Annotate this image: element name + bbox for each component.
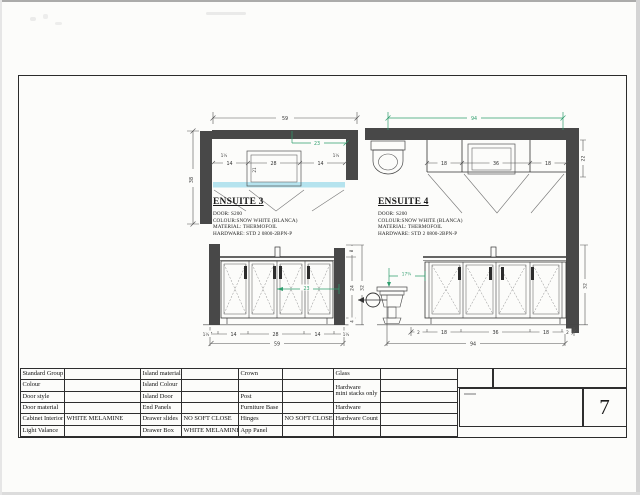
toilet-bowl-plan <box>373 150 403 174</box>
titleblock-cell-small <box>457 368 494 388</box>
vanity-plan-lines <box>427 140 566 172</box>
drawing-sheet: 59 38 14 28 14 1½ 1½ 21 23 <box>0 0 640 495</box>
stiles <box>249 261 305 318</box>
sink-cabinet-plan-inner <box>472 148 511 170</box>
dim-e3-elev-toe: 4 <box>350 320 355 323</box>
dim-e3-elev-seg-center: 28 <box>272 332 278 338</box>
spec-value-cell <box>182 369 239 380</box>
spec-value-cell <box>381 391 458 402</box>
counter-highlight <box>213 182 345 188</box>
spec-value-cell <box>381 414 458 425</box>
door-pull <box>273 266 276 279</box>
table-row: Cabinet Interior WHITE MELAMINE Drawer s… <box>21 414 458 425</box>
ensuite4-title: ENSUITE 4 <box>378 197 429 207</box>
dim-e3-elev-seg-left: 14 <box>230 332 236 338</box>
spec-label-cell: Standard Group <box>21 369 65 380</box>
wall-right <box>566 140 579 333</box>
spec-label-line: mini stacks only <box>336 391 379 397</box>
spec-label-cell: Door style <box>21 391 65 402</box>
dim-e3-elev-filler-left: 1½ <box>203 332 210 337</box>
spec-label-cell: Hardware <box>334 402 381 413</box>
spec-label-cell: Light Valance <box>21 425 65 436</box>
dim-e3-plan-filler-right: 1½ <box>333 153 340 158</box>
faint-mark <box>464 393 476 395</box>
spec-line: MATERIAL: THERMOFOIL <box>213 224 298 231</box>
green-arrow <box>387 282 391 287</box>
spec-label-cell: Hinges <box>239 414 283 425</box>
spec-value-cell: WHITE MELAMINE <box>182 425 239 436</box>
dim-e4-elev-total: 94 <box>470 342 476 348</box>
dim-e4-plan-seg-center: 36 <box>493 161 499 167</box>
titleblock-cell-wide <box>492 368 627 388</box>
spec-value-cell <box>283 402 334 413</box>
spec-label-cell-merged: Hardware mini stacks only <box>334 380 381 403</box>
spec-line: MATERIAL: THERMOFOIL <box>378 224 463 231</box>
door-pull <box>501 267 504 280</box>
spec-label-cell <box>334 425 381 436</box>
toilet-rim <box>380 291 404 295</box>
spec-label-cell: App Panel <box>239 425 283 436</box>
dim-e4-plan-depth: 22 <box>581 156 587 162</box>
dim-e4-plan-seg-right: 18 <box>545 161 551 167</box>
spec-line: DOOR: S200 <box>213 211 298 218</box>
ensuite3-title: ENSUITE 3 <box>213 197 264 207</box>
table-row: Standard Group Island material Crown Gla… <box>21 369 458 380</box>
spec-value-cell: WHITE MELAMINE <box>65 414 141 425</box>
spec-value-cell <box>65 391 141 402</box>
dim-e3-elev-cab-height: 24 <box>350 285 356 291</box>
page-number-box: 7 <box>582 388 627 427</box>
ensuite4-spec-block: DOOR: S200 COLOUR:SNOW WHITE (BLANCA) MA… <box>378 211 463 237</box>
toilet-bowl-inner <box>379 154 398 170</box>
spec-label-cell: Hardware Count <box>334 414 381 425</box>
dim-e3-plan-filler-left: 1½ <box>221 153 228 158</box>
spec-label-cell: Island Colour <box>141 380 182 391</box>
ensuite3-spec-block: DOOR: S200 COLOUR:SNOW WHITE (BLANCA) MA… <box>213 211 298 237</box>
spec-line: HARDWARE: STD 2 0800-2BPN-P <box>378 231 463 238</box>
spec-label-cell: Post <box>239 391 283 402</box>
spec-label-cell: Cabinet Interior <box>21 414 65 425</box>
dim-e4-plan-seg-left: 18 <box>441 161 447 167</box>
dim-e4-elev-toilet-offset: 17¾ <box>402 272 411 277</box>
wall-right <box>334 248 345 325</box>
page-number: 7 <box>599 395 610 420</box>
door-swing-marks <box>432 265 559 314</box>
spec-value-cell <box>65 380 141 391</box>
door-pull <box>458 267 461 280</box>
table-row: Colour Island Colour Hardware mini stack… <box>21 380 458 391</box>
spec-table: Standard Group Island material Crown Gla… <box>20 368 458 437</box>
door-pull <box>279 266 282 279</box>
dim-e4-elev-seg-center: 36 <box>492 330 498 336</box>
titleblock-notes-box <box>459 388 584 427</box>
dim-e3-elev-total: 59 <box>274 342 280 348</box>
ensuite3-plan-view: 59 38 14 28 14 1½ 1½ 21 23 <box>187 112 360 227</box>
spec-line: COLOUR:SNOW WHITE (BLANCA) <box>378 218 463 225</box>
spec-label-cell: Crown <box>239 369 283 380</box>
door-pull <box>489 267 492 280</box>
spec-value-cell: NO SOFT CLOSE <box>283 414 334 425</box>
spec-label-cell: Drawer slides <box>141 414 182 425</box>
wall-left <box>200 131 212 224</box>
spec-value-cell <box>283 391 334 402</box>
door-pull <box>531 267 534 280</box>
spec-label-cell: Furniture Base <box>239 402 283 413</box>
dim-e4-plan-total-width: 94 <box>471 116 477 122</box>
door-pull <box>307 266 310 279</box>
dim-line-total <box>385 295 568 346</box>
door-pull <box>244 266 247 279</box>
spec-value-cell <box>65 369 141 380</box>
spec-line: HARDWARE: STD 2 0800-2BPN-P <box>213 231 298 238</box>
toilet-base <box>383 318 401 324</box>
table-row: Light Valance Drawer Box WHITE MELAMINE … <box>21 425 458 436</box>
spec-value-cell <box>182 380 239 391</box>
splay-lines <box>428 174 564 213</box>
dim-e4-elev-seg-right: 18 <box>543 330 549 336</box>
dim-e4-elev-filler-left: 2 <box>417 330 420 335</box>
table-row: Door style Island Door Post <box>21 391 458 402</box>
toilet-seat <box>377 287 407 291</box>
spec-line: DOOR: S200 <box>378 211 463 218</box>
table-row: Door material End Panels Furniture Base … <box>21 402 458 413</box>
dim-e3-plan-sink-depth: 21 <box>252 167 257 173</box>
spec-value-cell: NO SOFT CLOSE <box>182 414 239 425</box>
toe-kick <box>203 318 352 325</box>
dim-e3-plan-green: 23 <box>314 141 320 147</box>
faucet <box>491 247 496 257</box>
spec-label-cell <box>239 380 283 391</box>
faucet <box>275 247 280 257</box>
dim-e4-elev-filler-right: 2 <box>566 330 569 335</box>
dim-e3-elev-seg-right: 14 <box>314 332 320 338</box>
ensuite4-elevation-view: 17¾ 2 18 36 18 2 94 32 <box>377 245 589 348</box>
dim-e3-plan-seg-center: 28 <box>270 161 276 167</box>
dim-e3-elev-total-height: 32 <box>360 285 366 291</box>
dim-e3-plan-total-height: 38 <box>189 177 195 183</box>
wall-right <box>346 139 358 180</box>
toilet-bowl <box>381 295 403 307</box>
sink-cabinet-plan-inner <box>251 155 297 182</box>
spec-value-cell <box>283 380 334 391</box>
spec-value-cell <box>182 391 239 402</box>
spec-value-cell <box>283 369 334 380</box>
spec-value-cell <box>381 425 458 436</box>
dim-e4-elev-total-height: 32 <box>583 283 589 289</box>
spec-value-cell <box>182 402 239 413</box>
dim-e3-elev-filler-right: 1½ <box>343 332 350 337</box>
section-marker-arrow <box>358 297 364 303</box>
wall-left <box>209 244 220 325</box>
toilet-side-view <box>377 287 407 324</box>
dim-e3-plan-total-width: 59 <box>282 116 288 122</box>
dim-e3-elev-green: 23 <box>303 286 309 292</box>
spec-label-cell: Drawer Box <box>141 425 182 436</box>
spec-value-cell <box>65 402 141 413</box>
wall-top <box>212 130 358 139</box>
spec-label-cell: Glass <box>334 369 381 380</box>
spec-label-cell: End Panels <box>141 402 182 413</box>
ensuite3-elevation-view: 1½ 14 28 14 1½ 59 8 24 4 32 <box>201 244 387 348</box>
toilet-pedestal <box>388 307 396 318</box>
wall-top <box>365 128 579 140</box>
spec-value-cell <box>283 425 334 436</box>
dim-e3-plan-seg-left: 14 <box>226 161 232 167</box>
toe-kick <box>377 318 580 325</box>
dim-e3-elev-splash: 8 <box>349 249 354 252</box>
spec-value-cell <box>65 425 141 436</box>
spec-value-cell <box>381 369 458 380</box>
dim-e3-plan-seg-right: 14 <box>317 161 323 167</box>
spec-label-cell: Colour <box>21 380 65 391</box>
sink-cabinet-plan <box>468 144 515 174</box>
spec-value-cell <box>381 380 458 391</box>
spec-label-cell: Island material <box>141 369 182 380</box>
spec-line: COLOUR:SNOW WHITE (BLANCA) <box>213 218 298 225</box>
spec-label-cell: Door material <box>21 402 65 413</box>
spec-value-cell <box>381 402 458 413</box>
toilet-tank-plan <box>371 141 405 150</box>
spec-label-cell: Island Door <box>141 391 182 402</box>
stiles <box>429 262 562 318</box>
dim-e4-elev-seg-left: 18 <box>441 330 447 336</box>
